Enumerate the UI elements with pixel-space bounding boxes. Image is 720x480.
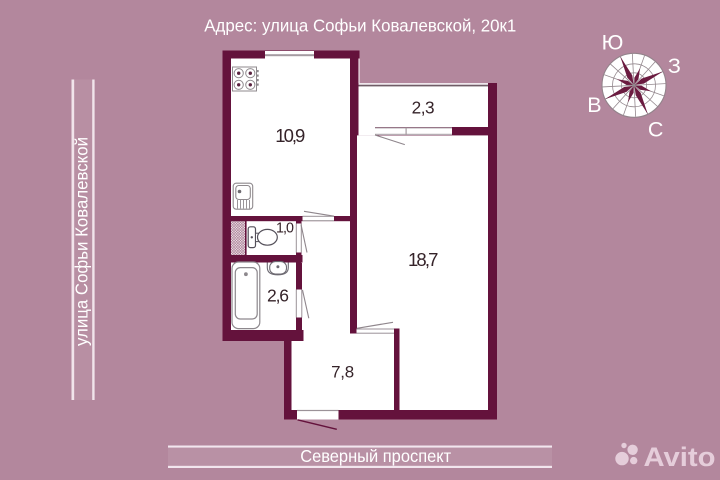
svg-text:улица Софьи Ковалевской: улица Софьи Ковалевской [72, 137, 92, 346]
svg-text:10,9: 10,9 [275, 125, 305, 146]
svg-text:2,6: 2,6 [267, 286, 289, 306]
svg-text:18,7: 18,7 [408, 249, 439, 270]
svg-text:Северный проспект: Северный проспект [300, 446, 451, 466]
svg-text:Ю: Ю [602, 31, 624, 55]
svg-text:7,8: 7,8 [331, 363, 354, 382]
svg-text:1,0: 1,0 [276, 220, 294, 236]
svg-text:2,3: 2,3 [412, 98, 435, 118]
svg-text:В: В [587, 93, 601, 117]
svg-text:Avito: Avito [644, 442, 716, 472]
svg-text:З: З [668, 54, 681, 78]
svg-text:С: С [648, 117, 664, 141]
svg-text:Адрес: улица Софьи Ковалевской: Адрес: улица Софьи Ковалевской, 20к1 [204, 15, 516, 35]
